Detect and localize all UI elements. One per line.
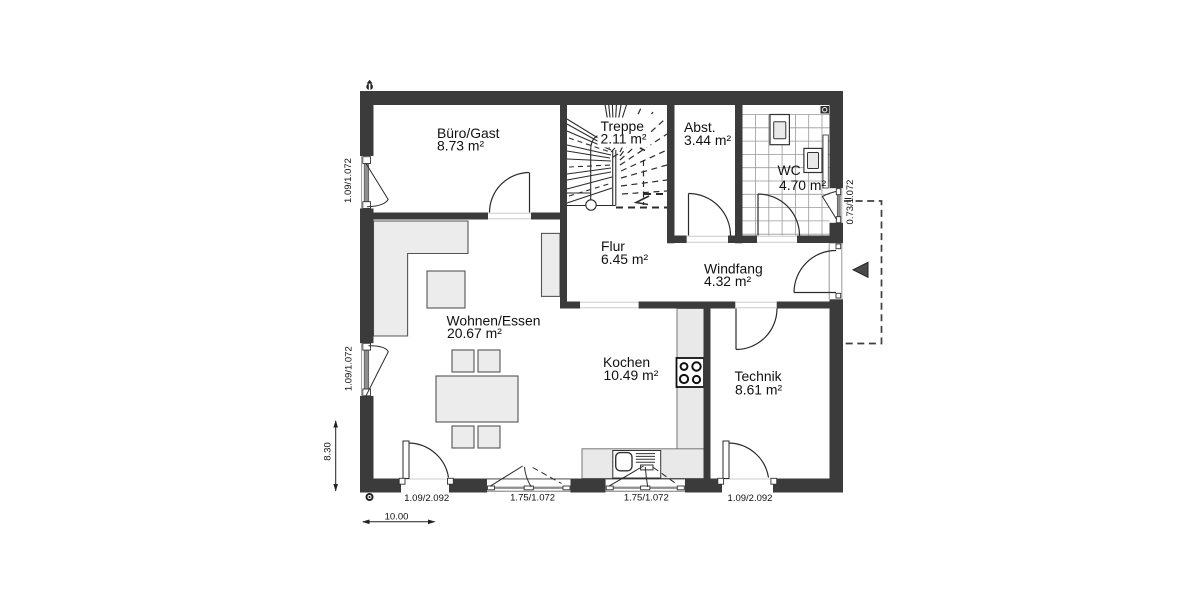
svg-text:0.73/1.072: 0.73/1.072 bbox=[845, 180, 856, 225]
svg-text:1.75/1.072: 1.75/1.072 bbox=[510, 493, 555, 504]
svg-text:WC: WC bbox=[778, 162, 801, 178]
svg-text:8.73 m²: 8.73 m² bbox=[437, 138, 484, 154]
svg-text:1.09/2.092: 1.09/2.092 bbox=[728, 493, 773, 504]
svg-text:4.32 m²: 4.32 m² bbox=[704, 273, 751, 289]
svg-text:4.70 m²: 4.70 m² bbox=[779, 177, 826, 193]
svg-text:1.09/1.072: 1.09/1.072 bbox=[343, 158, 354, 203]
svg-text:1.09/2.092: 1.09/2.092 bbox=[404, 493, 449, 504]
svg-text:10.00: 10.00 bbox=[385, 512, 409, 523]
svg-text:20.67 m²: 20.67 m² bbox=[447, 325, 502, 341]
svg-text:6.45 m²: 6.45 m² bbox=[601, 251, 648, 267]
svg-text:1.75/1.072: 1.75/1.072 bbox=[624, 493, 669, 504]
svg-text:2.11 m²: 2.11 m² bbox=[601, 131, 647, 147]
svg-text:10.49 m²: 10.49 m² bbox=[604, 367, 659, 383]
svg-text:3.44 m²: 3.44 m² bbox=[684, 132, 731, 148]
svg-text:1.09/1.072: 1.09/1.072 bbox=[343, 346, 354, 391]
svg-text:8.61 m²: 8.61 m² bbox=[735, 382, 782, 398]
svg-text:8.30: 8.30 bbox=[323, 442, 334, 461]
